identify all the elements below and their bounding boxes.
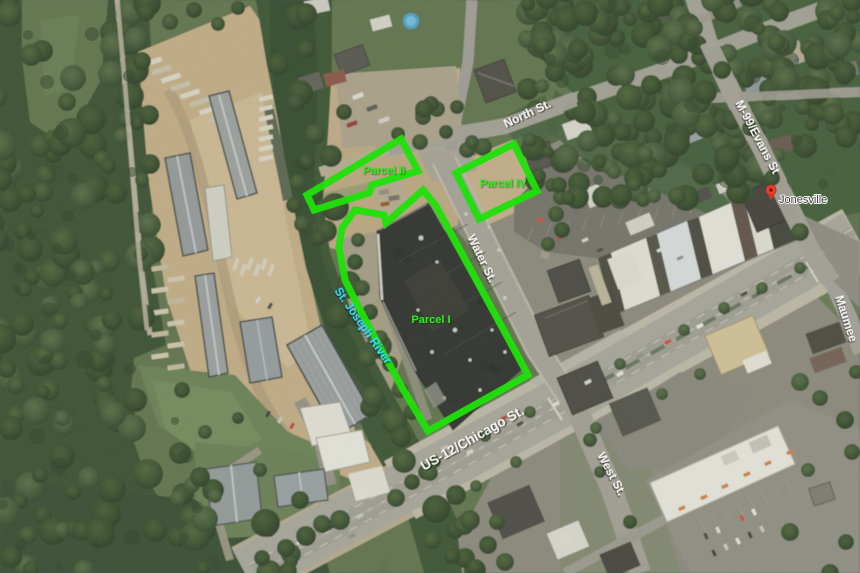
svg-text:Parcel I: Parcel I xyxy=(411,314,450,326)
svg-text:Jonesville: Jonesville xyxy=(779,194,827,206)
svg-text:Parcel II: Parcel II xyxy=(363,165,405,177)
svg-text:Parcel IV: Parcel IV xyxy=(480,178,527,190)
